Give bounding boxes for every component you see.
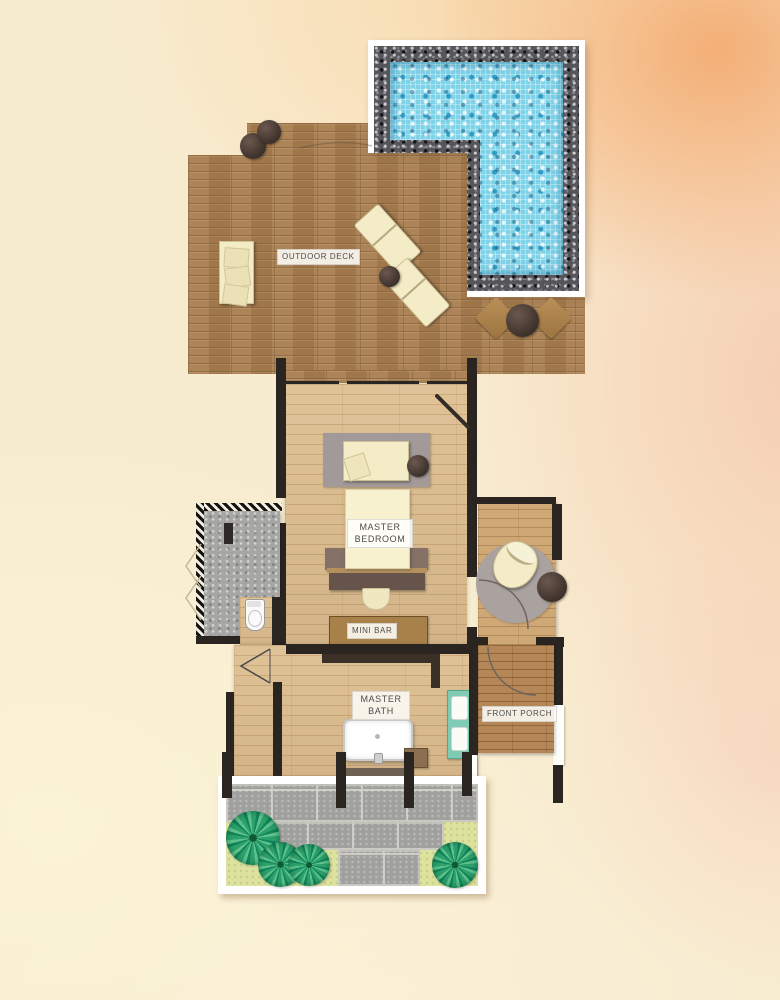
toilet-bowl	[248, 610, 262, 627]
garden-pavers-path	[338, 850, 420, 886]
court-post	[336, 752, 346, 808]
daybed	[343, 441, 409, 481]
porch-wall-right	[553, 637, 563, 705]
hatched-wall-top	[196, 503, 282, 511]
deck-side-table	[379, 266, 400, 287]
sliding-door-track	[285, 381, 339, 384]
shower-wall-bottom	[196, 636, 242, 644]
bathtub	[343, 719, 413, 761]
master-bedroom-label-line2: BEDROOM	[352, 534, 408, 546]
floor-plan-canvas: OUTDOOR DECK MASTER BEDROOM MINI BAR MAS…	[0, 0, 780, 1000]
garden-frame	[218, 776, 486, 894]
mini-bar-label-text: MINI BAR	[352, 626, 392, 635]
court-post	[404, 752, 414, 808]
porch-step-edge	[476, 497, 556, 504]
outdoor-deck-label: OUTDOOR DECK	[277, 249, 360, 265]
garden-tree	[288, 844, 330, 886]
deck-sofa	[219, 241, 254, 304]
deck-round-table	[506, 304, 539, 337]
hatched-wall-left	[196, 503, 204, 643]
master-bath-label: MASTER BATH	[352, 691, 410, 720]
tub-faucet	[374, 753, 383, 764]
front-porch-label: FRONT PORCH	[482, 706, 557, 722]
mini-bar-label: MINI BAR	[347, 623, 397, 639]
tub-drain	[375, 734, 380, 739]
sliding-door-track	[347, 381, 419, 384]
double-sink-vanity	[447, 690, 471, 759]
vanity-sink	[451, 727, 468, 751]
court-post	[222, 752, 232, 798]
outdoor-deck-label-text: OUTDOOR DECK	[282, 252, 355, 261]
master-bedroom-label-line1: MASTER	[352, 522, 408, 534]
porch-post-right	[552, 504, 562, 560]
bath-counter	[322, 654, 440, 663]
porch-wall-left	[469, 647, 478, 755]
front-porch-floor	[478, 645, 554, 753]
outdoor-shower-floor	[204, 599, 240, 637]
vanity-sink	[451, 696, 468, 720]
front-porch-label-text: FRONT PORCH	[487, 709, 552, 718]
bedroom-wall-right	[467, 358, 477, 577]
master-bath-label-line2: BATH	[357, 706, 405, 718]
bath-top-wall	[286, 644, 472, 654]
bath-counter-return	[431, 654, 440, 688]
sliding-door-track	[427, 381, 467, 384]
porch-side-table	[537, 572, 567, 602]
sofa-cushion	[222, 283, 250, 306]
bedroom-wall-left	[276, 358, 286, 498]
toilet-tank	[247, 601, 261, 607]
daybed-side-table	[407, 455, 429, 477]
deck-stool	[257, 120, 281, 144]
porch-post	[553, 765, 563, 803]
toilet	[245, 599, 265, 631]
lounger-crease	[402, 278, 426, 300]
garden-tree	[432, 842, 478, 888]
daybed-pillow	[343, 452, 371, 482]
lounger-crease	[373, 224, 397, 246]
outdoor-shower-floor	[204, 511, 280, 599]
bath-inner-wall	[273, 682, 282, 778]
shower-fixture	[224, 523, 233, 544]
court-post	[462, 752, 472, 796]
master-bath-label-line1: MASTER	[357, 694, 405, 706]
master-bedroom-label: MASTER BEDROOM	[347, 519, 413, 548]
